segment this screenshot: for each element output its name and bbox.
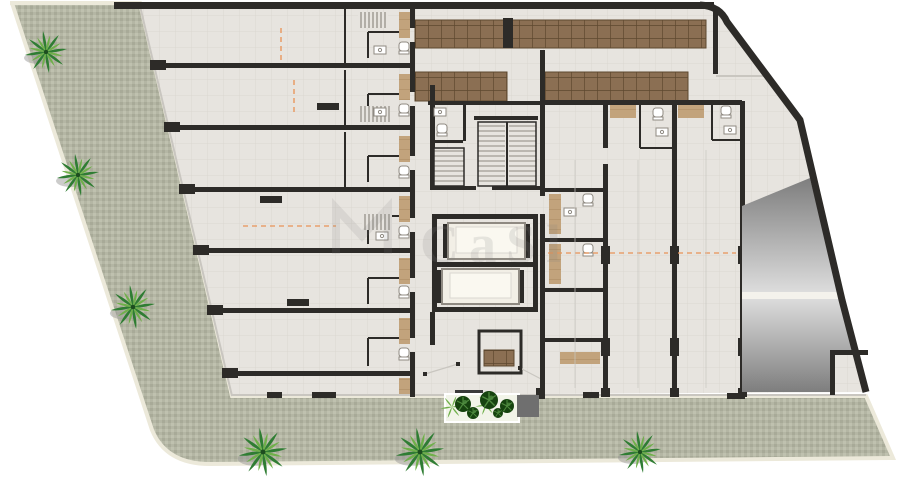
planter-bush [493,408,503,418]
unit-wall [225,371,412,376]
unit-wall [196,248,412,253]
right-top-wall [545,100,742,105]
corner-room-wall [830,350,835,395]
unit-wall [181,187,412,192]
planter-bush [480,391,498,409]
deck-joint-wall [503,18,513,48]
watermark-text: CaSl [420,214,571,274]
deck-band-top [415,20,706,48]
utility-box [517,395,539,417]
stair-flight-1 [434,148,464,186]
deck-band-left [415,72,507,101]
planter-bush [467,407,479,419]
deck-band-right [542,72,688,101]
stair-flight-2 [474,116,538,186]
patio-stub-wall [713,10,718,74]
top-wall [114,2,714,9]
unit-wall [210,308,412,313]
unit-wall [153,63,412,68]
landing-wall [430,186,476,190]
spine-wall [540,50,545,196]
corner-room-wall [830,350,868,355]
hall-top-wall [428,101,542,105]
building: CaSl [114,2,868,399]
floor-plan-page: CaSl [0,0,900,482]
landing-wall [492,186,542,190]
ramp-landing [742,292,838,299]
entrance-mat [484,350,514,366]
floor-plan-svg: CaSl [0,0,900,482]
unit-wall [167,125,412,130]
elevator-2 [437,269,524,304]
